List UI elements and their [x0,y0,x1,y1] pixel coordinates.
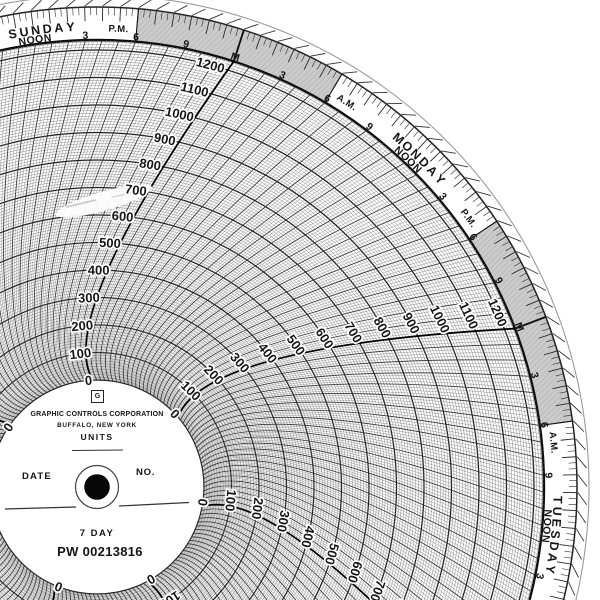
date-label: DATE [22,471,52,482]
svg-text:0: 0 [195,498,211,507]
svg-text:9: 9 [542,472,554,478]
svg-text:S: S [7,27,18,42]
svg-text:300: 300 [78,290,100,306]
svg-text:T: T [550,496,564,504]
svg-text:A: A [54,21,64,36]
svg-text:400: 400 [298,525,318,550]
svg-text:P.M.: P.M. [108,23,129,35]
circular-chart-paper: SUNDAYNOON3P.M.69M36A.M.9MONDAYNOON3P.M.… [0,0,600,600]
svg-text:3: 3 [82,30,88,42]
svg-text:0: 0 [0,513,3,524]
svg-text:500: 500 [322,542,342,567]
svg-text:N: N [539,534,552,543]
svg-text:700: 700 [367,578,389,600]
units-label: UNITS [81,432,114,442]
svg-text:100: 100 [222,489,239,512]
svg-text:700: 700 [124,181,147,199]
svg-text:800: 800 [138,155,162,173]
svg-text:100: 100 [69,345,92,363]
svg-text:400: 400 [88,262,110,277]
svg-text:Y: Y [66,20,76,34]
svg-text:A: A [545,552,560,563]
company-city: BUFFALO, NEW YORK [57,422,137,429]
svg-text:6: 6 [538,421,551,429]
chart-grid-svg: SUNDAYNOON3P.M.69M36A.M.9MONDAYNOON3P.M.… [0,0,600,600]
number-label: NO. [136,467,155,478]
brand-logo-glyph: G [95,393,100,400]
svg-text:N: N [43,32,52,45]
svg-text:A.M.: A.M. [546,431,559,454]
svg-text:200: 200 [249,497,267,521]
svg-text:500: 500 [284,332,309,358]
svg-text:N: N [541,509,553,517]
svg-text:0: 0 [84,373,92,389]
svg-text:600: 600 [345,560,366,585]
svg-text:600: 600 [111,208,134,225]
brand-logo: G [91,390,104,403]
cycle-label: 7 DAY [80,528,115,539]
svg-text:200: 200 [71,317,94,334]
part-number: PW 00213816 [57,544,143,559]
svg-text:1000: 1000 [164,104,195,125]
svg-text:500: 500 [99,235,121,251]
company-name: GRAPHIC CONTROLS CORPORATION [30,411,163,418]
svg-text:6: 6 [133,31,140,43]
